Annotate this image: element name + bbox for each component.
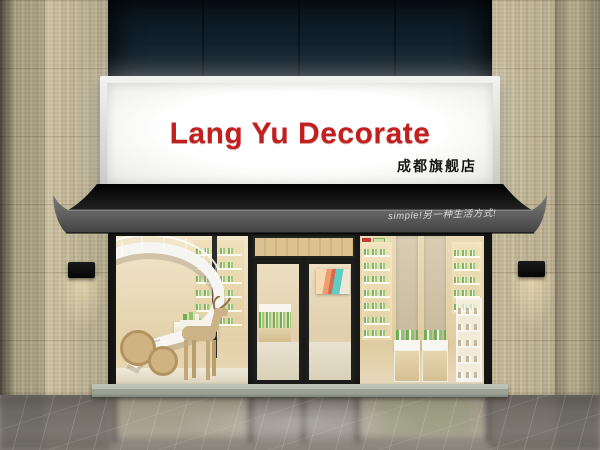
display-table [422,330,448,382]
floor-reflection [301,397,306,443]
interior-display-counter [259,304,291,334]
display-table [394,330,420,382]
side-wall-right [555,0,600,450]
interior-floor [309,342,351,380]
entrance-step [92,384,508,397]
interior-floor [257,342,299,380]
polished-floor [0,395,600,450]
pillar-left [45,0,110,450]
floor-reflection [555,395,600,450]
sconce-light-glow [55,276,109,336]
door-transom-panel [253,236,355,258]
sign-board: Lang Yu Decorate 成都旗舰店 [100,76,500,192]
wooden-deer-sculpture [170,296,236,382]
display-window-right [360,236,484,384]
display-window-left [116,236,248,384]
upper-fascia-panel [108,0,492,88]
floor-reflection [360,397,484,437]
storefront-scene: Lang Yu Decorate 成都旗舰店 [0,0,600,450]
sign-title: Lang Yu Decorate [107,117,493,151]
wall-sconce-right [518,261,545,277]
floor-reflection [486,397,491,443]
floor-reflection [116,397,248,437]
interior-beauty-poster [316,269,350,294]
entrance-door-left [253,260,303,384]
floor-reflection [382,399,470,433]
floor-reflection [490,395,555,450]
sign-lightbox-face: Lang Yu Decorate 成都旗舰店 [107,83,493,185]
floor-reflection [355,397,360,443]
pillar-right [490,0,555,450]
wall-sconce-left [68,262,95,278]
sconce-light-glow [505,275,559,335]
floor-reflection [0,395,45,450]
floor-reflection [248,397,253,443]
sign-subtitle: 成都旗舰店 [397,156,477,176]
interior-wall-shelves [362,242,392,340]
white-etagere-shelf [456,298,482,382]
floor-reflection [45,395,110,450]
side-wall-left [0,0,45,450]
storefront-frame [108,228,492,392]
entrance-door-right [305,260,355,384]
floor-reflection-sign-glow [170,403,430,443]
floor-reflection [112,397,117,443]
wicker-wheel [148,346,178,376]
